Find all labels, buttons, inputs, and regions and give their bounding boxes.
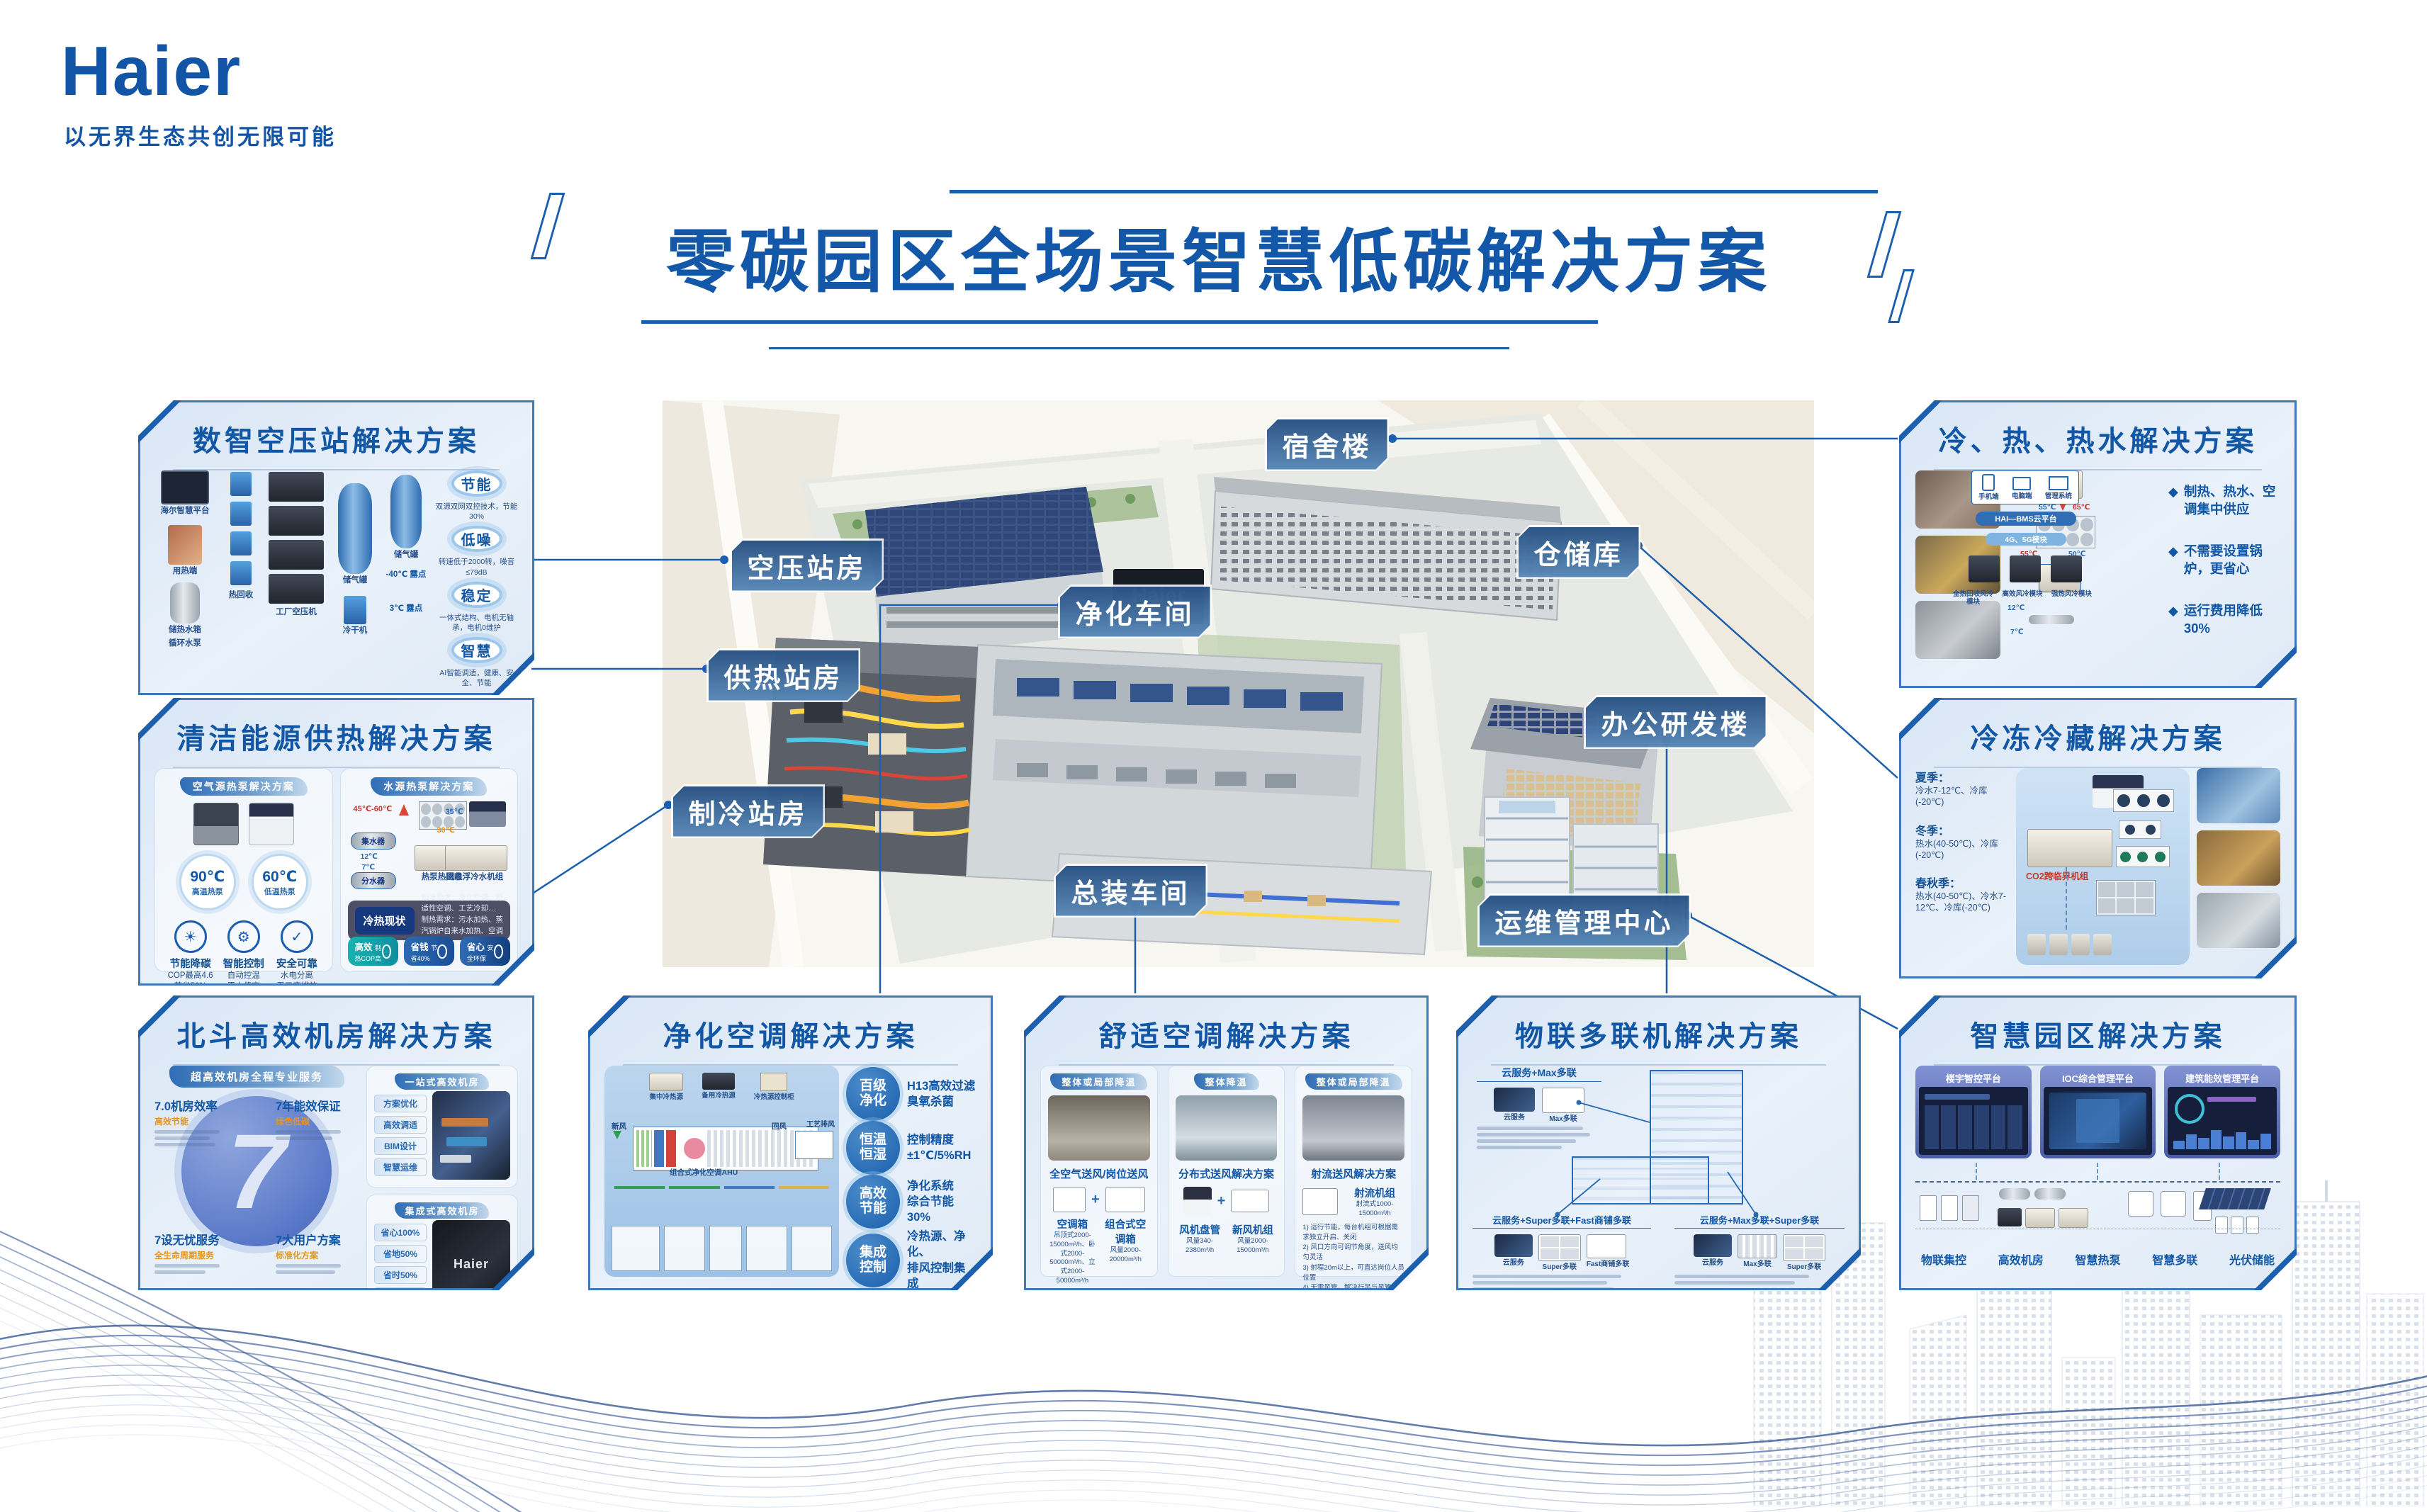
circle-icon xyxy=(494,944,503,959)
plus-icon: + xyxy=(1217,1193,1226,1209)
air-source-card: 空气源热泵解决方案 90℃ 高温热泵 60℃ 低温热泵 xyxy=(154,768,333,972)
col-header: 整体或局部降温 xyxy=(1050,1073,1147,1090)
chip-efficient: 高效 制热COP高 xyxy=(348,937,398,966)
panel-comfort-ac: 舒适空调解决方案 整体或局部降温 全空气送风/岗位送风 + 空调箱吊顶式2000… xyxy=(1024,995,1429,1290)
bms-cloud-pill: HAI—BMS云平台 xyxy=(1976,512,2076,526)
container-plant-render: Haier xyxy=(432,1220,510,1309)
modular-ahu-icon xyxy=(1105,1187,1145,1212)
product-name: 新风机组 xyxy=(1229,1222,1278,1237)
ahu-box xyxy=(633,1127,818,1170)
map-tag-heating-station: 供热站房 xyxy=(706,648,860,702)
integrated-header: 集成式高效机房 xyxy=(395,1202,489,1219)
red-arrow-up-icon xyxy=(399,804,409,816)
title-decor-line-bottom2 xyxy=(769,347,1509,349)
water-tank-icon xyxy=(2096,880,2156,915)
brand-slogan: 以无界生态共创无限可能 xyxy=(64,119,337,151)
badge-desc: 转速低于2000转，噪音≤79dB xyxy=(435,557,518,577)
diamond-icon: ◆ xyxy=(2168,483,2178,501)
text-placeholder-line xyxy=(154,1270,205,1274)
cassette-icon xyxy=(1183,1187,1212,1215)
application-photos xyxy=(2197,768,2280,965)
hotwater-schematic: 热水机 55℃ 65℃ 55℃ 50℃ 12℃ 7℃ 手机端 电脑端 管理系统 xyxy=(2008,470,2161,675)
title-block: 零碳园区全场景智慧低碳解决方案 xyxy=(624,177,1814,361)
badge-const-temp: 恒温恒湿 xyxy=(846,1121,900,1175)
panel-beidou-plant-room: 北斗高效机房解决方案 超高效机房全程专业服务 7 7.0机房效率高效节能 7年能… xyxy=(138,995,534,1290)
season-desc: 热水(40-50℃)、冷水7-12℃、冷库(-20℃) xyxy=(1915,891,2009,914)
co2-unit-label: CO2跨临界机组 xyxy=(2026,869,2088,882)
panel-title: 舒适空调解决方案 xyxy=(1026,998,1426,1054)
integrated-card: 集成式高效机房 省心100% 省地50% 省时50% 省材90% Haier xyxy=(366,1195,518,1316)
corner-service: 7设无忧服务全生命周期服务 xyxy=(154,1231,238,1277)
collector-pill: 集水器 xyxy=(351,833,396,850)
status-line1: 制冷需求：净化空调、舒适性空调、工艺冷却… xyxy=(422,893,505,915)
storage-battery-icon xyxy=(2246,1217,2259,1234)
product-spec: 射流式1000-15000m³/h xyxy=(1345,1200,1404,1219)
controller-icon xyxy=(1920,1195,1937,1221)
aircooled-units xyxy=(1969,555,2082,582)
panel-title: 北斗高效机房解决方案 xyxy=(140,998,532,1054)
cooling-tower-icon xyxy=(469,801,506,827)
heat-recovery-label: 热回收 xyxy=(224,591,258,601)
title-decor-slash-right1 xyxy=(1867,211,1902,278)
product-name: 射流机组 xyxy=(1345,1185,1404,1200)
equipment-strip xyxy=(1915,1181,2280,1251)
laptop-icon xyxy=(2012,477,2031,490)
badge-energy-saving: 节能 xyxy=(451,470,502,497)
text-placeholder-line xyxy=(1472,1281,1607,1285)
status-tag: 冷热现状 xyxy=(355,907,415,935)
chip: 省地50% xyxy=(374,1245,427,1263)
heat-user-photo-icon xyxy=(168,525,202,565)
air-cooler-icon xyxy=(2113,789,2174,812)
office-photo xyxy=(2197,893,2280,948)
text-placeholder-line xyxy=(154,1143,215,1146)
clean-rooms xyxy=(612,1226,832,1271)
service-pill: 超高效机房全程专业服务 xyxy=(169,1066,344,1088)
heat-pump-light-icon xyxy=(249,803,294,845)
controller-icon xyxy=(1941,1195,1958,1221)
air-source-header: 空气源热泵解决方案 xyxy=(180,777,308,796)
status-box: 冷热现状 制冷需求：净化空调、舒适性空调、工艺冷却… 制热需求：污水加热、蒸汽锅… xyxy=(348,901,511,940)
room-box xyxy=(746,1226,787,1271)
ahu-schematic: 集中冷热源 备用冷热源 冷热源控制柜 新风 组合式净化空调AHU 回风 工艺排风 xyxy=(604,1066,839,1277)
map-tag-assembly-workshop: 总装车间 xyxy=(1054,864,1207,918)
badge-smart: 智慧 xyxy=(451,637,502,663)
chip: 省时50% xyxy=(374,1266,427,1284)
room-box xyxy=(612,1226,660,1271)
feature-badges: 节能 双源双网双控技术，节能30% 低噪 转速低于2000转，噪音≤79dB 稳… xyxy=(435,470,518,682)
product-spec: 吊顶式2000-15000m³/h、卧式2000-50000m³/h、立式200… xyxy=(1048,1231,1097,1286)
season-desc: 热水(40-50℃)、冷库(-20℃) xyxy=(1915,838,2009,862)
compressor-icon xyxy=(269,574,324,604)
text-placeholder-line xyxy=(154,1130,220,1134)
badge-stable: 稳定 xyxy=(451,582,502,608)
dew-point-cold: -40℃ 露点 xyxy=(384,570,428,580)
heat-pump-dark-icon xyxy=(193,803,239,845)
season-desc: 冷水7-12℃、冷库(-20℃) xyxy=(1915,785,2009,808)
product-name: 空调箱 xyxy=(1048,1217,1097,1231)
panel-iot-vrf: 物联多联机解决方案 云服务+Max多联 云服务 Max多联 云服务+Super多… xyxy=(1456,995,1861,1290)
plus-icon: + xyxy=(1091,1192,1100,1208)
note: 2) 风口方向可调节角度，送风均匀灵活 xyxy=(1302,1243,1404,1263)
exhaust-label: 工艺排风 xyxy=(806,1118,835,1129)
cold-storage-photo xyxy=(2197,768,2280,823)
note: 3) 射程20m以上，可直达岗位人员位置 xyxy=(1302,1263,1404,1284)
workers-photo xyxy=(1302,1095,1404,1161)
bullet-text: 制热、热水、空调集中供应 xyxy=(2184,483,2280,519)
4g5g-pill: 4G、5G模块 xyxy=(1986,533,2066,546)
dashed-arrow-icon xyxy=(1976,1163,1977,1180)
maglev-chiller-icon xyxy=(445,845,507,871)
campus-map: Haier xyxy=(663,400,1814,967)
section-label: 物联集控 xyxy=(1921,1251,1966,1268)
text-placeholder-line xyxy=(1674,1281,1795,1285)
dashboard-icon xyxy=(2049,476,2068,490)
one-stop-card: 一站式高效机房 方案优化 高效调适 BIM设计 智慧运维 xyxy=(366,1066,518,1187)
bullet-text: 运行费用降低30% xyxy=(2184,602,2280,638)
map-tag-dormitory: 宿舍楼 xyxy=(1265,417,1389,471)
compressor-icon xyxy=(269,472,324,502)
chip: 高效调适 xyxy=(374,1116,427,1134)
product-spec: 风量340-2380m³/h xyxy=(1176,1237,1224,1256)
chip: 智慧运维 xyxy=(374,1158,427,1176)
panel-title: 净化空调解决方案 xyxy=(590,998,991,1054)
one-stop-header: 一站式高效机房 xyxy=(395,1073,489,1090)
panel-smart-park: 智慧园区解决方案 楼宇智控平台 IOC综合管理平台 xyxy=(1899,995,2297,1290)
compressor-label: 工厂空压机 xyxy=(266,608,326,618)
map-tag-purification-workshop: 净化车间 xyxy=(1058,585,1212,638)
monitor-energy-mgmt: 建筑能效管理平台 xyxy=(2164,1066,2280,1158)
note: 5) 节省风管及安装费用 xyxy=(1302,1304,1404,1314)
supply-ducts xyxy=(614,1186,829,1189)
diamond-icon: ◆ xyxy=(2168,602,2178,620)
chip: 省材90% xyxy=(374,1287,427,1305)
module-label: 全热回收风冷模块 xyxy=(1952,590,1995,607)
panel-cold-heat-hotwater: 冷、热、热水解决方案 热水机 55℃ 65℃ 55℃ 50℃ xyxy=(1899,400,2297,688)
dashed-arrow-icon xyxy=(2097,1163,2098,1180)
unit-icon xyxy=(2010,555,2041,582)
filter-section xyxy=(636,1130,652,1167)
feature-energy: ☀ 节能降碳 COP最高4.6 节省50% xyxy=(165,920,215,992)
heat-recovery-icon xyxy=(230,561,252,585)
compressor-icon xyxy=(269,540,324,570)
badge-desc: 双源双网双控技术，节能30% xyxy=(435,502,518,521)
air-tank2-icon xyxy=(390,475,422,548)
text-placeholder-line xyxy=(276,1264,341,1268)
feature-badges: 百级净化 H13高效过滤臭氧杀菌 恒温恒湿 控制精度±1℃/5%RH 高效节能 … xyxy=(846,1066,976,1277)
header-pipe-icon xyxy=(2034,1188,2066,1200)
co2-schematic: CO2跨临界机组 xyxy=(2016,768,2190,965)
section-label: 智慧多联 xyxy=(2152,1251,2197,1268)
panel-title: 冷、热、热水解决方案 xyxy=(1901,402,2294,459)
client-devices: 手机端 电脑端 管理系统 xyxy=(1971,470,2079,504)
badge-class100: 百级净化 xyxy=(846,1067,900,1121)
green-arrow-icon xyxy=(613,1131,621,1139)
badge-efficient: 高效节能 xyxy=(846,1175,900,1229)
plant-room-render xyxy=(432,1091,510,1180)
corner-efficiency: 7.0机房效率高效节能 xyxy=(154,1097,238,1149)
column-jet: 整体或局部降温 射流送风解决方案 射流机组射流式1000-15000m³/h 1… xyxy=(1295,1066,1412,1277)
bulb-icon: ☀ xyxy=(174,920,207,953)
control-cabinet-icon xyxy=(760,1073,787,1091)
title-decor-slash-left xyxy=(531,193,565,259)
chiller-icon xyxy=(2025,1208,2055,1228)
haier-zero-carbon-park-poster: { "brand": {"logo": "Haier", "slogan": "… xyxy=(0,0,2427,1506)
chip: 省心100% xyxy=(374,1224,427,1241)
heat-recovery-icon xyxy=(230,531,252,555)
panel-title: 清洁能源供热解决方案 xyxy=(140,700,532,757)
dryer-label: 冷干机 xyxy=(334,626,376,636)
screen-title: 建筑能效管理平台 xyxy=(2168,1069,2277,1087)
chip: BIM设计 xyxy=(374,1137,427,1155)
haier-mark: Haier xyxy=(454,1257,489,1272)
jet-unit-icon xyxy=(1302,1188,1338,1215)
module-label: 强热风冷模块 xyxy=(2050,590,2093,607)
co2-unit-icon xyxy=(2027,829,2112,867)
map-tag-air-compressor-station: 空压站房 xyxy=(730,538,884,592)
text-placeholder-line xyxy=(276,1270,335,1274)
section-labels: 物联集控 高效机房 智慧热泵 智慧多联 光伏储能 xyxy=(1915,1251,2280,1268)
cassette-ac-icon xyxy=(2161,1191,2186,1217)
map-tag-ops-center: 运维管理中心 xyxy=(1477,893,1691,947)
dashed-arrow-icon xyxy=(2219,1163,2220,1180)
col-header: 整体或局部降温 xyxy=(1305,1073,1402,1090)
backup-chiller-icon xyxy=(702,1073,735,1090)
badge-low-noise: 低噪 xyxy=(451,526,502,552)
pipe-dashed-line xyxy=(2066,867,2067,930)
distributor-pill: 分水器 xyxy=(351,872,396,889)
water-source-header: 水源热泵解决方案 xyxy=(371,777,487,796)
badge-desc: 一体式结构、电机无轴承，电机0维护 xyxy=(435,613,518,633)
season-title: 春秋季： xyxy=(1915,874,2009,891)
pump-label: 循环水泵 xyxy=(154,639,215,649)
duct-unit-icon xyxy=(2029,615,2074,624)
dew-point-warm: 3℃ 露点 xyxy=(384,604,428,614)
controller-icon xyxy=(1962,1195,1979,1221)
bus-dashed-line xyxy=(1915,1229,2280,1229)
fresh-air-label: 新风 xyxy=(612,1121,626,1132)
ahu-label: 组合式净化空调AHU xyxy=(670,1168,738,1178)
temp-7: 7℃ xyxy=(362,863,376,871)
text-placeholder-line xyxy=(276,1136,332,1140)
fresh-air-unit-icon xyxy=(1231,1190,1269,1212)
air-tank2-label: 储气罐 xyxy=(384,551,428,560)
map-tag-office-rd: 办公研发楼 xyxy=(1584,695,1767,749)
title-decor-slash-right2 xyxy=(1888,269,1915,323)
heat-recovery-icon xyxy=(230,472,252,496)
air-cooler-icon xyxy=(2119,820,2161,839)
panel-title: 数智空压站解决方案 xyxy=(140,402,532,459)
chiller-row xyxy=(2027,934,2112,955)
product-spec: 风量2000-20000m³/h xyxy=(1101,1246,1150,1265)
return-air-label: 回风 xyxy=(772,1121,787,1132)
cooling-coil xyxy=(654,1130,664,1167)
temp-30: 30℃ xyxy=(437,825,455,835)
chip-worry-free: 省心 安全环保 xyxy=(460,937,510,966)
room-box xyxy=(792,1226,832,1271)
chiller-icon xyxy=(649,1073,683,1091)
compressor-icon xyxy=(269,506,324,536)
text-placeholder-line xyxy=(1472,1287,1614,1291)
monitor-building-control: 楼宇智控平台 xyxy=(1915,1066,2032,1158)
circle-icon xyxy=(382,944,390,959)
air-cooler-icon xyxy=(2116,846,2170,867)
temp-circle-90: 90℃ 高温热泵 xyxy=(179,854,236,910)
warehouse-photo xyxy=(2197,830,2280,886)
chip: 方案优化 xyxy=(374,1095,427,1112)
map-tag-cooling-station: 制冷站房 xyxy=(671,784,825,838)
title-decor-line-top xyxy=(950,190,1878,193)
jet-notes: 1) 运行节能，每台机组可根据需求独立开启、关闭 2) 风口方向可调节角度，送风… xyxy=(1302,1223,1404,1314)
column-distributed: 整体降温 分布式送风解决方案 + 风机盘管风量340-2380m³/h 新风机组… xyxy=(1168,1066,1285,1277)
exhaust-unit-icon xyxy=(795,1131,833,1159)
feature-smart: ⚙ 智能控制 自动控温 无人值守 xyxy=(218,920,269,992)
panel-title: 冷冻冷藏解决方案 xyxy=(1901,700,2294,757)
room-box xyxy=(709,1226,742,1271)
circle-icon xyxy=(437,944,446,959)
corner-solutions: 7大用户方案标准化方案 xyxy=(276,1231,359,1277)
temp-circle-60: 60℃ 低温热泵 xyxy=(252,854,308,910)
panel-clean-energy-heating: 清洁能源供热解决方案 空气源热泵解决方案 90℃ 高温热泵 60℃ 低温热泵 xyxy=(138,698,534,986)
panel-air-compressor: 数智空压站解决方案 海尔智慧平台 用热端 储热水箱 循环水泵 xyxy=(138,400,534,695)
heat-recovery-icon xyxy=(230,502,252,526)
panel-title: 物联多联机解决方案 xyxy=(1458,998,1859,1054)
col-header: 整体降温 xyxy=(1194,1073,1259,1090)
season-title: 冬季： xyxy=(1915,821,2009,838)
robot-icon: ⚙ xyxy=(227,920,260,953)
control-screen-icon xyxy=(161,470,209,504)
dryer-icon xyxy=(344,596,366,624)
feature-safe: ✓ 安全可靠 水电分离 无三废排放 xyxy=(271,920,322,992)
storage-battery-icon xyxy=(2231,1217,2243,1234)
cassette-ac-icon xyxy=(2128,1191,2153,1217)
water-source-schematic: 45℃-60℃ 35℃ 30℃ 集水器 分水器 12℃ 7℃ 热泵热回收 磁悬 xyxy=(351,801,508,892)
vrf-leader-lines xyxy=(1472,1066,1845,1278)
product-name: 风机盘管 xyxy=(1176,1222,1224,1237)
section-label: 光伏储能 xyxy=(2229,1251,2275,1268)
col-subtitle: 全空气送风/岗位送风 xyxy=(1048,1166,1150,1181)
season-title: 夏季： xyxy=(1915,768,2009,785)
duct-ceiling-photo xyxy=(1176,1095,1278,1161)
badge-integrated: 集成控制 xyxy=(846,1234,900,1287)
text-placeholder-line xyxy=(154,1136,210,1140)
temp-7: 7℃ xyxy=(2010,628,2024,636)
text-placeholder-line xyxy=(154,1264,220,1268)
season-notes: 夏季：冷水7-12℃、冷库(-20℃) 冬季：热水(40-50℃)、冷库(-20… xyxy=(1915,768,2009,965)
section-label: 高效机房 xyxy=(1998,1251,2044,1268)
air-tank-icon xyxy=(338,483,372,574)
ahu-icon xyxy=(1053,1187,1086,1212)
gear-icon: ✓ xyxy=(281,920,313,953)
heat-pump-units xyxy=(165,803,322,845)
air-tank-label: 储气罐 xyxy=(334,576,376,586)
panel-freezing-cold-storage: 冷冻冷藏解决方案 夏季：冷水7-12℃、冷库(-20℃) 冬季：热水(40-50… xyxy=(1899,698,2297,978)
heating-coil xyxy=(666,1130,676,1167)
heat-source-row: 集中冷热源 备用冷热源 冷热源控制柜 xyxy=(612,1073,832,1101)
panel-title: 智慧园区解决方案 xyxy=(1901,998,2294,1054)
storage-battery-icon xyxy=(2215,1217,2228,1234)
seven-service-diagram: 超高效机房全程专业服务 7 7.0机房效率高效节能 7年能效保证绿色低碳 7设无… xyxy=(154,1066,359,1277)
downlink-arrows xyxy=(1915,1163,2280,1180)
fan-section xyxy=(684,1138,705,1159)
platform-label: 海尔智慧平台 xyxy=(154,507,215,517)
column-all-air: 整体或局部降温 全空气送风/岗位送风 + 空调箱吊顶式2000-15000m³/… xyxy=(1040,1066,1158,1277)
col-subtitle: 分布式送风解决方案 xyxy=(1176,1166,1278,1181)
panel-purification-ac: 净化空调解决方案 集中冷热源 备用冷热源 冷热源控制柜 新风 组合式净化空 xyxy=(588,995,993,1290)
benefit-bullets: ◆制热、热水、空调集中供应 ◆不需要设置锅炉，更省心 ◆运行费用降低30% xyxy=(2168,470,2280,675)
note: 1) 运行节能，每台机组可根据需求独立开启、关闭 xyxy=(1302,1223,1404,1243)
col-subtitle: 射流送风解决方案 xyxy=(1302,1166,1404,1181)
header-pipe-icon xyxy=(1999,1188,2030,1200)
unit-icon xyxy=(1969,555,2000,582)
platform-screens: 楼宇智控平台 IOC综合管理平台 建筑能 xyxy=(1915,1066,2280,1158)
phone-icon xyxy=(1982,474,1995,491)
screen-title: IOC综合管理平台 xyxy=(2044,1069,2153,1087)
heat-user-label: 用热端 xyxy=(154,567,215,577)
chip-save-money: 省钱 节省40% xyxy=(404,937,454,966)
module-label: 高效风冷模块 xyxy=(2000,590,2044,607)
compressor-schematic: 海尔智慧平台 用热端 储热水箱 循环水泵 热回收 xyxy=(154,470,428,682)
temp-35: 35℃ xyxy=(445,807,463,816)
title-decor-line-bottom xyxy=(641,320,1598,324)
unit2-label: 磁悬浮冷水机组 xyxy=(439,873,510,883)
screen-title: 楼宇智控平台 xyxy=(1919,1069,2028,1087)
map-tag-warehouse: 仓储库 xyxy=(1516,525,1640,579)
product-spec: 风量2000-15000m³/h xyxy=(1229,1237,1278,1256)
chiller-icon xyxy=(1998,1208,2022,1226)
unit-icon xyxy=(2051,555,2082,582)
bullet-text: 不需要设置锅炉，更省心 xyxy=(2184,543,2280,578)
haier-logo: Haier xyxy=(61,31,242,111)
temp-12: 12℃ xyxy=(361,852,378,861)
product-name: 组合式空调箱 xyxy=(1101,1217,1150,1246)
hot-water-tank-icon xyxy=(170,582,200,624)
page-title: 零碳园区全场景智慧低碳解决方案 xyxy=(624,205,1814,305)
hotel-room-photo xyxy=(1915,601,2000,659)
solar-panel-icon xyxy=(2199,1188,2271,1209)
tank-label: 储热水箱 xyxy=(154,626,215,636)
water-source-card: 水源热泵解决方案 45℃-60℃ 35℃ 30℃ 集水器 分水器 xyxy=(340,768,519,972)
text-placeholder-line xyxy=(276,1130,341,1134)
room-box xyxy=(664,1226,704,1271)
factory-photo xyxy=(1048,1095,1150,1161)
chiller-icon xyxy=(2059,1208,2088,1228)
monitor-ioc: IOC综合管理平台 xyxy=(2040,1066,2156,1158)
diamond-icon: ◆ xyxy=(2168,543,2178,560)
corner-guarantee: 7年能效保证绿色低碳 xyxy=(276,1097,359,1143)
temp-45-60: 45℃-60℃ xyxy=(354,804,393,813)
section-label: 智慧热泵 xyxy=(2075,1251,2120,1268)
